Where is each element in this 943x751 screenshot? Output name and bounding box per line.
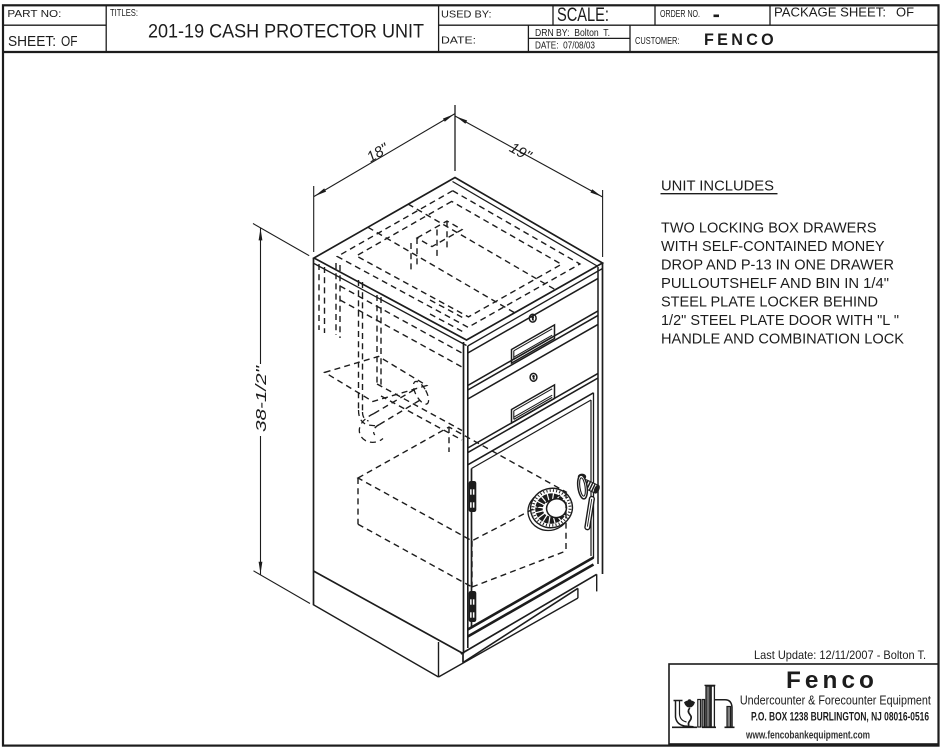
svg-text:CUSTOMER:: CUSTOMER: <box>635 36 680 47</box>
svg-text:USED BY:: USED BY: <box>441 9 492 21</box>
svg-text:DROP AND P-13 IN ONE DRAWER: DROP AND P-13 IN ONE DRAWER <box>661 257 894 274</box>
svg-text:HANDLE AND COMBINATION LOCK: HANDLE AND COMBINATION LOCK <box>661 331 904 348</box>
svg-text:38-1/2": 38-1/2" <box>253 365 270 432</box>
svg-text:UNIT INCLUDES: UNIT INCLUDES <box>661 178 774 195</box>
svg-text:Last Update: 12/11/2007 - Bolt: Last Update: 12/11/2007 - Bolton T. <box>754 648 926 662</box>
svg-text:SCALE:: SCALE: <box>557 4 609 26</box>
svg-text:P.O. BOX 1238 BURLINGTON, NJ 0: P.O. BOX 1238 BURLINGTON, NJ 08016-0516 <box>751 712 929 724</box>
svg-text:PULLOUTSHELF AND BIN IN 1/4": PULLOUTSHELF AND BIN IN 1/4" <box>661 275 889 292</box>
svg-text:FENCO: FENCO <box>704 30 777 49</box>
svg-text:TITLES:: TITLES: <box>110 8 138 19</box>
svg-text:Fenco: Fenco <box>786 667 878 694</box>
svg-text:Undercounter & Forecounter Equ: Undercounter & Forecounter Equipment <box>740 693 931 708</box>
svg-text:DATE:: DATE: <box>441 35 476 47</box>
svg-text:1/2" STEEL PLATE DOOR WITH "L: 1/2" STEEL PLATE DOOR WITH "L " <box>661 312 899 329</box>
svg-text:DATE: 07/08/03: DATE: 07/08/03 <box>535 41 595 52</box>
svg-text:WITH SELF-CONTAINED MONEY: WITH SELF-CONTAINED MONEY <box>661 238 885 255</box>
svg-text:OF: OF <box>896 5 914 20</box>
svg-text:DRN BY: Bolton T.: DRN BY: Bolton T. <box>535 28 610 39</box>
svg-text:PACKAGE SHEET:: PACKAGE SHEET: <box>774 5 886 20</box>
svg-text:PART NO:: PART NO: <box>7 9 61 20</box>
svg-text:TWO LOCKING BOX DRAWERS: TWO LOCKING BOX DRAWERS <box>661 220 877 237</box>
svg-text:STEEL PLATE LOCKER BEHIND: STEEL PLATE LOCKER BEHIND <box>661 294 878 311</box>
svg-text:201-19 CASH PROTECTOR UNIT: 201-19 CASH PROTECTOR UNIT <box>148 22 424 43</box>
svg-text:www.fencobankequipment.com: www.fencobankequipment.com <box>745 730 870 742</box>
svg-text:SHEET:: SHEET: <box>8 33 56 50</box>
svg-text:OF: OF <box>61 33 78 50</box>
svg-text:ORDER NO.: ORDER NO. <box>660 9 700 20</box>
